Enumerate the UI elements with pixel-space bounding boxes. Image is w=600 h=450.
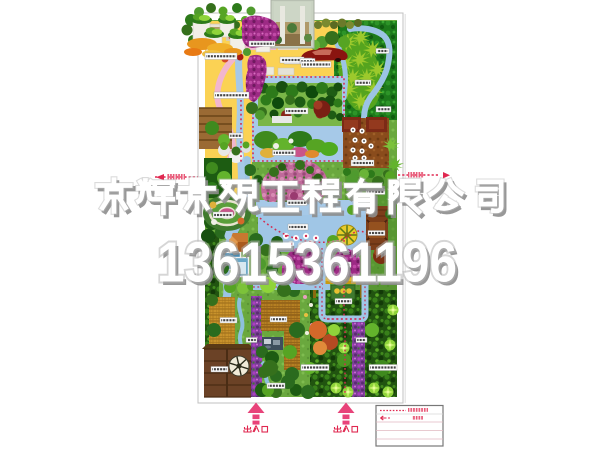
svg-text:13615361196: 13615361196: [157, 231, 457, 295]
